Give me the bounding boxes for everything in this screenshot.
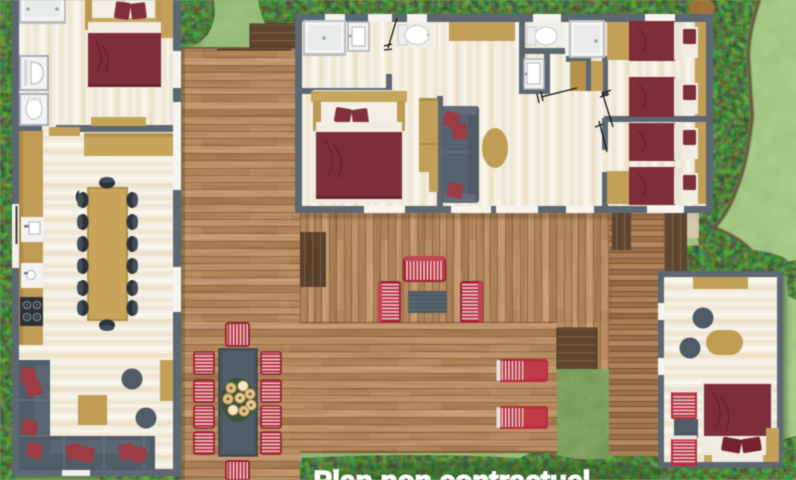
svg-text:Plan non contractuel: Plan non contractuel [314, 465, 591, 480]
